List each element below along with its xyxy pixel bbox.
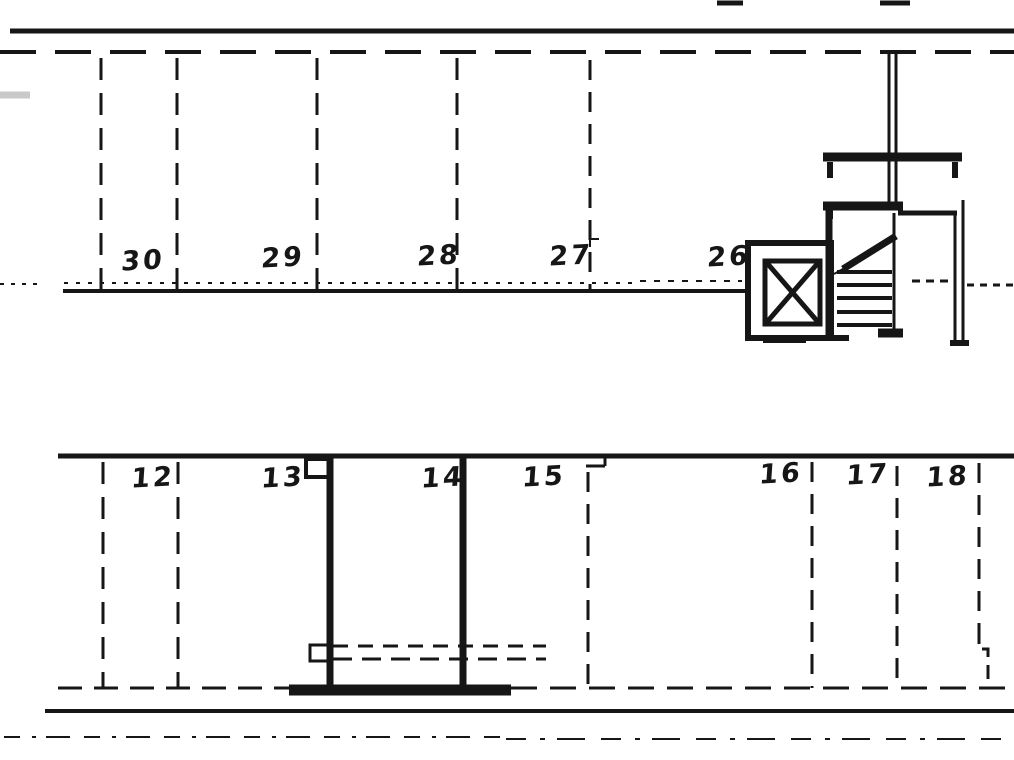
stall-label-26: 26 [706,240,752,273]
stall-label-28: 28 [416,239,462,272]
stall-label-17: 17 [845,458,891,491]
stall-label-18: 18 [925,460,971,493]
stall-label-27: 27 [548,239,594,272]
stall-label-30: 30 [120,244,166,277]
stall-label-14: 14 [420,461,466,494]
stall-label-29: 29 [260,241,306,274]
plan-polyline [979,630,988,688]
floor-plan-svg [0,0,1014,760]
stall-label-16: 16 [758,457,804,490]
plan-rect [306,459,330,477]
scanned-floor-plan: 30 29 28 27 26 12 13 14 15 16 17 18 [0,0,1014,760]
plan-rect [310,645,328,661]
stall-label-13: 13 [260,461,306,494]
stall-label-12: 12 [130,461,176,494]
stall-label-15: 15 [521,460,567,493]
